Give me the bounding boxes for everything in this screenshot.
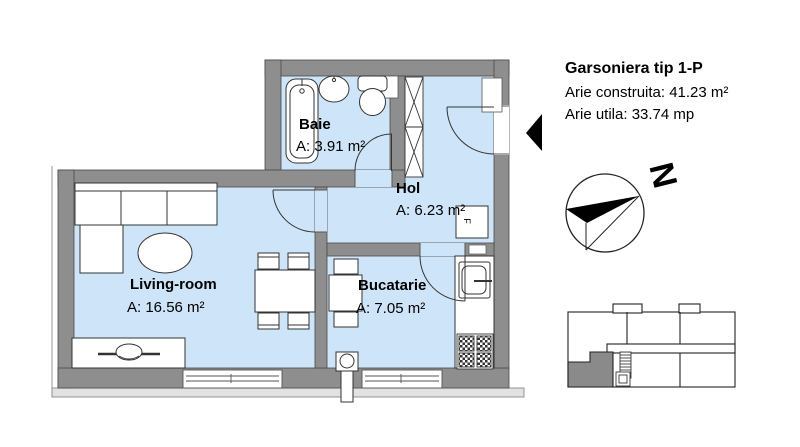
room-label-baie: Baie [299, 117, 331, 134]
room-area-living: A: 16.56 m² [127, 300, 205, 317]
coffee-table-icon [138, 233, 192, 273]
north-compass-icon [566, 174, 644, 252]
toilet-icon [358, 76, 387, 116]
built-area-text: Arie construita: 41.23 m² [565, 85, 728, 102]
room-area-hol: A: 6.23 m² [396, 203, 465, 220]
room-area-bucatarie: A: 7.05 m² [356, 301, 425, 318]
floorplan-page: Baie A: 3.91 m² Hol A: 6.23 m² Living-ro… [0, 0, 800, 447]
wardrobe-icon [405, 77, 423, 177]
tv-cabinet-icon [72, 338, 185, 368]
room-label-living: Living-room [130, 277, 217, 294]
bathroom-sink-icon [319, 76, 349, 102]
kitchen-sink-icon [459, 262, 492, 298]
room-label-bucatarie: Bucatarie [358, 278, 426, 295]
usable-area-text: Arie utila: 33.74 mp [565, 107, 694, 124]
furnace-letter: F [462, 218, 472, 224]
apartment-title: Garsoniera tip 1-P [565, 60, 703, 78]
stove-icon [457, 334, 493, 369]
entrance-arrow-icon [526, 114, 542, 151]
key-plan [568, 304, 735, 387]
room-area-baie: A: 3.91 m² [296, 139, 365, 156]
room-label-hol: Hol [396, 181, 420, 198]
